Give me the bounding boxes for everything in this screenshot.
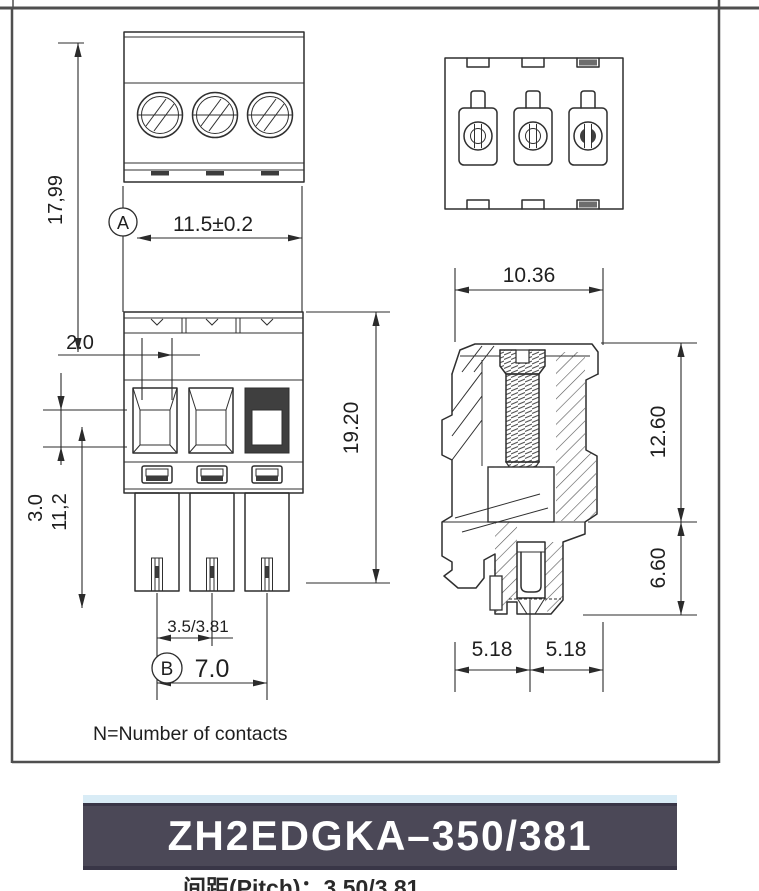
- sheet-frame: [0, 0, 759, 763]
- contact-2: [514, 91, 552, 165]
- dimension-11-5: A 11.5±0.2: [109, 186, 302, 312]
- part-number-text: ZH2EDGKA–350/381: [167, 812, 592, 860]
- banner-top-strip: [83, 795, 677, 803]
- dim-wall: 2.0: [66, 332, 94, 354]
- dimension-19-20: 19.20: [306, 312, 390, 583]
- dim-pin-length: 11,2: [49, 493, 71, 530]
- banner-bar: ZH2EDGKA–350/381: [83, 803, 677, 870]
- opening-1: [133, 388, 177, 453]
- dimension-10-36: 10.36: [455, 264, 603, 345]
- contacts-note: N=Number of contacts: [93, 723, 288, 745]
- footer-spec-partial: 间距(Pitch)：3.50/3.81: [183, 869, 523, 891]
- dim-body-height: 12.60: [647, 406, 670, 459]
- datum-b-label: B: [161, 659, 174, 680]
- dimension-17-99: 17,99: [45, 43, 84, 352]
- latch-row: [142, 466, 282, 483]
- socket-top-view: [445, 58, 623, 209]
- dim-latch: 3.0: [25, 494, 47, 522]
- dimension-6-60: 6.60: [583, 522, 697, 615]
- dimension-3-0: 3.0: [25, 373, 127, 522]
- opening-3: [245, 388, 289, 453]
- cross-section-view: [442, 344, 598, 614]
- dim-pitch: 3.5/3.81: [167, 617, 228, 636]
- part-number-banner: ZH2EDGKA–350/381: [83, 795, 677, 870]
- dimension-12-60: 12.60: [588, 343, 697, 522]
- dim-span: 7.0: [195, 655, 230, 683]
- dimension-2-0: 2.0: [58, 332, 200, 400]
- dim-offset-right: 5.18: [546, 638, 587, 661]
- plug-front-view: [124, 312, 303, 591]
- section-screw: [500, 350, 545, 471]
- dim-offset-left: 5.18: [472, 638, 513, 661]
- dim-width-top: 11.5±0.2: [173, 213, 253, 236]
- drawing-sheet: 17,99 A 11.5±0.2 2.0 3.0 11,2 19.20: [0, 0, 759, 891]
- dimension-7-0: B 7.0: [152, 653, 267, 686]
- contact-3: [569, 91, 607, 165]
- dim-total-height: 19.20: [340, 402, 363, 455]
- technical-drawing: 17,99 A 11.5±0.2 2.0 3.0 11,2 19.20: [0, 0, 759, 891]
- dim-depth: 10.36: [503, 264, 556, 287]
- dim-overall-height: 17,99: [45, 175, 67, 225]
- screw-front-view: [124, 32, 304, 182]
- opening-2: [189, 388, 233, 453]
- datum-a-label: A: [117, 213, 129, 233]
- pin-legs: [135, 493, 289, 591]
- contact-1: [459, 91, 497, 165]
- dim-pin-depth: 6.60: [647, 548, 670, 589]
- dimension-11-2: 11,2: [49, 427, 86, 608]
- dimension-pitch: 3.5/3.81: [157, 593, 267, 700]
